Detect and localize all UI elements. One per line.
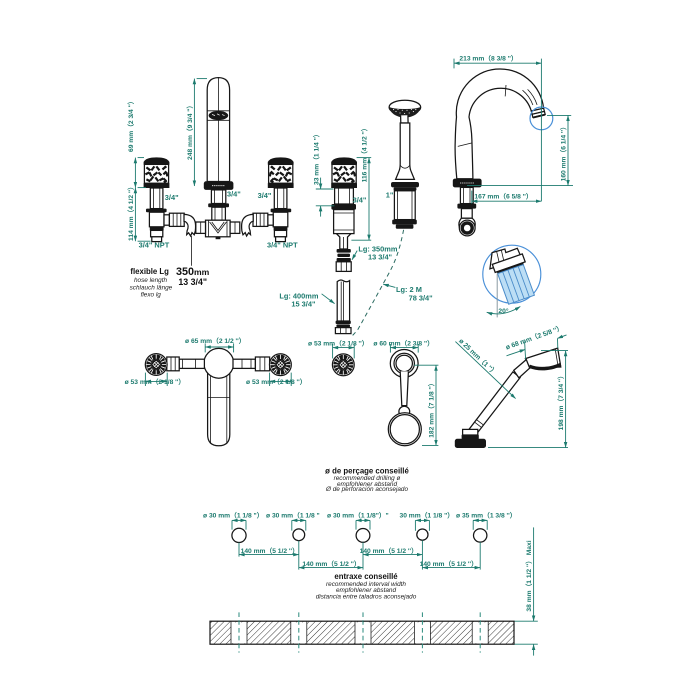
svg-text:33 mm（1 1/4 ''）: 33 mm（1 1/4 ''） — [312, 131, 320, 185]
svg-text:3/4": 3/4" — [353, 196, 367, 205]
svg-text:ø 60 mm（2 3/8 ''）: ø 60 mm（2 3/8 ''） — [373, 340, 433, 348]
svg-text:140 mm（5 1/2 ''）: 140 mm（5 1/2 ''） — [241, 547, 299, 555]
svg-text:ø 65 mm（2 1/2 ''）: ø 65 mm（2 1/2 ''） — [185, 337, 245, 345]
svg-text:Ø de perforación aconsejado: Ø de perforación aconsejado — [325, 486, 409, 493]
svg-text:ø 30 mm（1 1/8 "）: ø 30 mm（1 1/8 "） — [203, 512, 263, 520]
svg-text:38 mm（1 1/2 ''） Maxi: 38 mm（1 1/2 ''） Maxi — [525, 540, 533, 611]
svg-text:schlauch länge: schlauch länge — [130, 284, 173, 291]
svg-text:30 mm（1 1/8 "）: 30 mm（1 1/8 "） — [400, 512, 454, 520]
svg-text:1": 1" — [386, 191, 394, 200]
svg-text:3/4": 3/4" — [258, 191, 272, 200]
svg-text:3/4" NPT: 3/4" NPT — [267, 240, 298, 249]
svg-text:ø 53 mm（2 1/8 ''）: ø 53 mm（2 1/8 ''） — [246, 378, 306, 386]
svg-text:213 mm（8 3/8 ''）: 213 mm（8 3/8 ''） — [459, 54, 517, 62]
svg-text:hose length: hose length — [134, 277, 167, 284]
svg-text:entraxe conseillé: entraxe conseillé — [334, 572, 398, 581]
svg-text:140 mm（5 1/2 ''）: 140 mm（5 1/2 ''） — [302, 560, 360, 568]
svg-text:140 mm（5 1/2 ''）: 140 mm（5 1/2 ''） — [360, 547, 418, 555]
svg-text:13 3/4": 13 3/4" — [178, 277, 207, 287]
svg-text:distancia entre taladros acons: distancia entre taladros aconsejado — [316, 593, 417, 600]
svg-text:69 mm（2 3/4 ''）: 69 mm（2 3/4 ''） — [127, 98, 135, 152]
svg-text:3/4": 3/4" — [165, 193, 179, 202]
svg-text:flexo lg: flexo lg — [141, 292, 162, 299]
svg-text:flexible Lg: flexible Lg — [130, 267, 169, 276]
svg-text:78 3/4": 78 3/4" — [409, 293, 434, 302]
svg-text:15 3/4": 15 3/4" — [291, 300, 316, 309]
svg-text:13 3/4": 13 3/4" — [368, 252, 393, 261]
svg-text:198 mm（7 3/4 ''）: 198 mm（7 3/4 ''） — [557, 372, 565, 430]
svg-text:3/4" NPT: 3/4" NPT — [139, 240, 170, 249]
svg-text:ø 30 mm（1 1/8 ": ø 30 mm（1 1/8 " — [266, 512, 320, 520]
svg-text:3/4": 3/4" — [227, 189, 241, 198]
svg-text:140 mm（5 1/2 ''）: 140 mm（5 1/2 ''） — [420, 560, 478, 568]
svg-text:ø 30 mm（1 1/8"）": ø 30 mm（1 1/8"）" — [327, 512, 389, 520]
svg-text:182 mm（7 1/8 ''）: 182 mm（7 1/8 ''） — [427, 380, 435, 438]
svg-text:ø 53 mm（2 1/8 ''）: ø 53 mm（2 1/8 ''） — [308, 340, 368, 348]
svg-text:167 mm（6 5/8 ''）: 167 mm（6 5/8 ''） — [474, 193, 532, 201]
svg-text:ø 53 mm（2 1/8 ''）: ø 53 mm（2 1/8 ''） — [125, 378, 185, 386]
svg-text:20°: 20° — [498, 307, 508, 315]
svg-text:ø 35 mm（1 3/8 ''）: ø 35 mm（1 3/8 ''） — [456, 512, 516, 520]
svg-text:160 mm（6 1/4 ''）: 160 mm（6 1/4 ''） — [559, 123, 567, 181]
svg-text:114 mm（4 1/2 ''）: 114 mm（4 1/2 ''） — [127, 183, 135, 241]
svg-text:116 mm（4 1/2 ''）: 116 mm（4 1/2 ''） — [360, 125, 368, 183]
svg-text:248 mm（9 3/4 ''）: 248 mm（9 3/4 ''） — [186, 102, 194, 160]
